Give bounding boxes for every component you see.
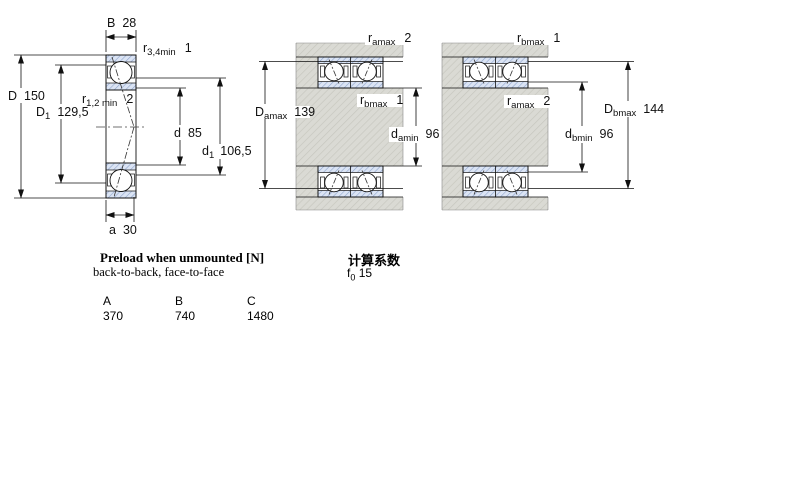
middle-abutment-drawing: ramax2 rbmax1 Damax139 damin96 (250, 31, 439, 210)
preload-subtitle: back-to-back, face-to-face (93, 265, 224, 280)
outer-ring-bottom (106, 191, 136, 198)
column-value: 740 (175, 309, 247, 323)
calculation-factor: f0 15 (347, 266, 372, 282)
bearing-pair-top (463, 57, 528, 88)
dim-label-r12min: r1,2 min2 (82, 92, 133, 109)
preload-table: A 370 B 740 C 1480 (103, 294, 319, 323)
bearing-drawings: B28 r3,4min1 D150 D1129,5 r1,2 min2 d85 … (0, 0, 800, 245)
column-value: 370 (103, 309, 175, 323)
factor-value: 15 (359, 266, 372, 280)
ball-top (110, 62, 132, 84)
factor-subscript: 0 (350, 272, 355, 282)
bearing-pair-bottom (318, 166, 383, 197)
dim-label-D1: D1129,5 (36, 105, 89, 122)
column-header: A (103, 294, 175, 308)
dim-label-d: d85 (174, 126, 202, 140)
ball-bottom (110, 170, 132, 192)
dim-label-Dbmax: Dbmax144 (604, 102, 664, 119)
housing-band (442, 197, 548, 210)
bearing-datasheet: B28 r3,4min1 D150 D1129,5 r1,2 min2 d85 … (0, 0, 800, 500)
right-abutment-drawing: rbmax1 ramax2 Dbmax144 dbmin96 (442, 31, 664, 210)
dim-label-a: a30 (109, 223, 137, 237)
dim-label-D: D150 (8, 89, 45, 103)
dim-label-dbmin: dbmin96 (565, 127, 613, 144)
bearing-pair-bottom (463, 166, 528, 197)
column-header: C (247, 294, 319, 308)
preload-column-c: C 1480 (247, 294, 319, 323)
left-bearing-cross-section: B28 r3,4min1 D150 D1129,5 r1,2 min2 d85 … (5, 16, 252, 237)
dim-label-r34min: r3,4min1 (143, 41, 192, 58)
column-header: B (175, 294, 247, 308)
preload-column-b: B 740 (175, 294, 247, 323)
outer-ring-top (106, 55, 136, 62)
housing-band (296, 197, 403, 210)
preload-column-a: A 370 (103, 294, 175, 323)
column-value: 1480 (247, 309, 319, 323)
dim-label-B: B28 (107, 16, 136, 30)
preload-title: Preload when unmounted [N] (100, 250, 264, 266)
inner-ring-bottom (106, 163, 136, 170)
